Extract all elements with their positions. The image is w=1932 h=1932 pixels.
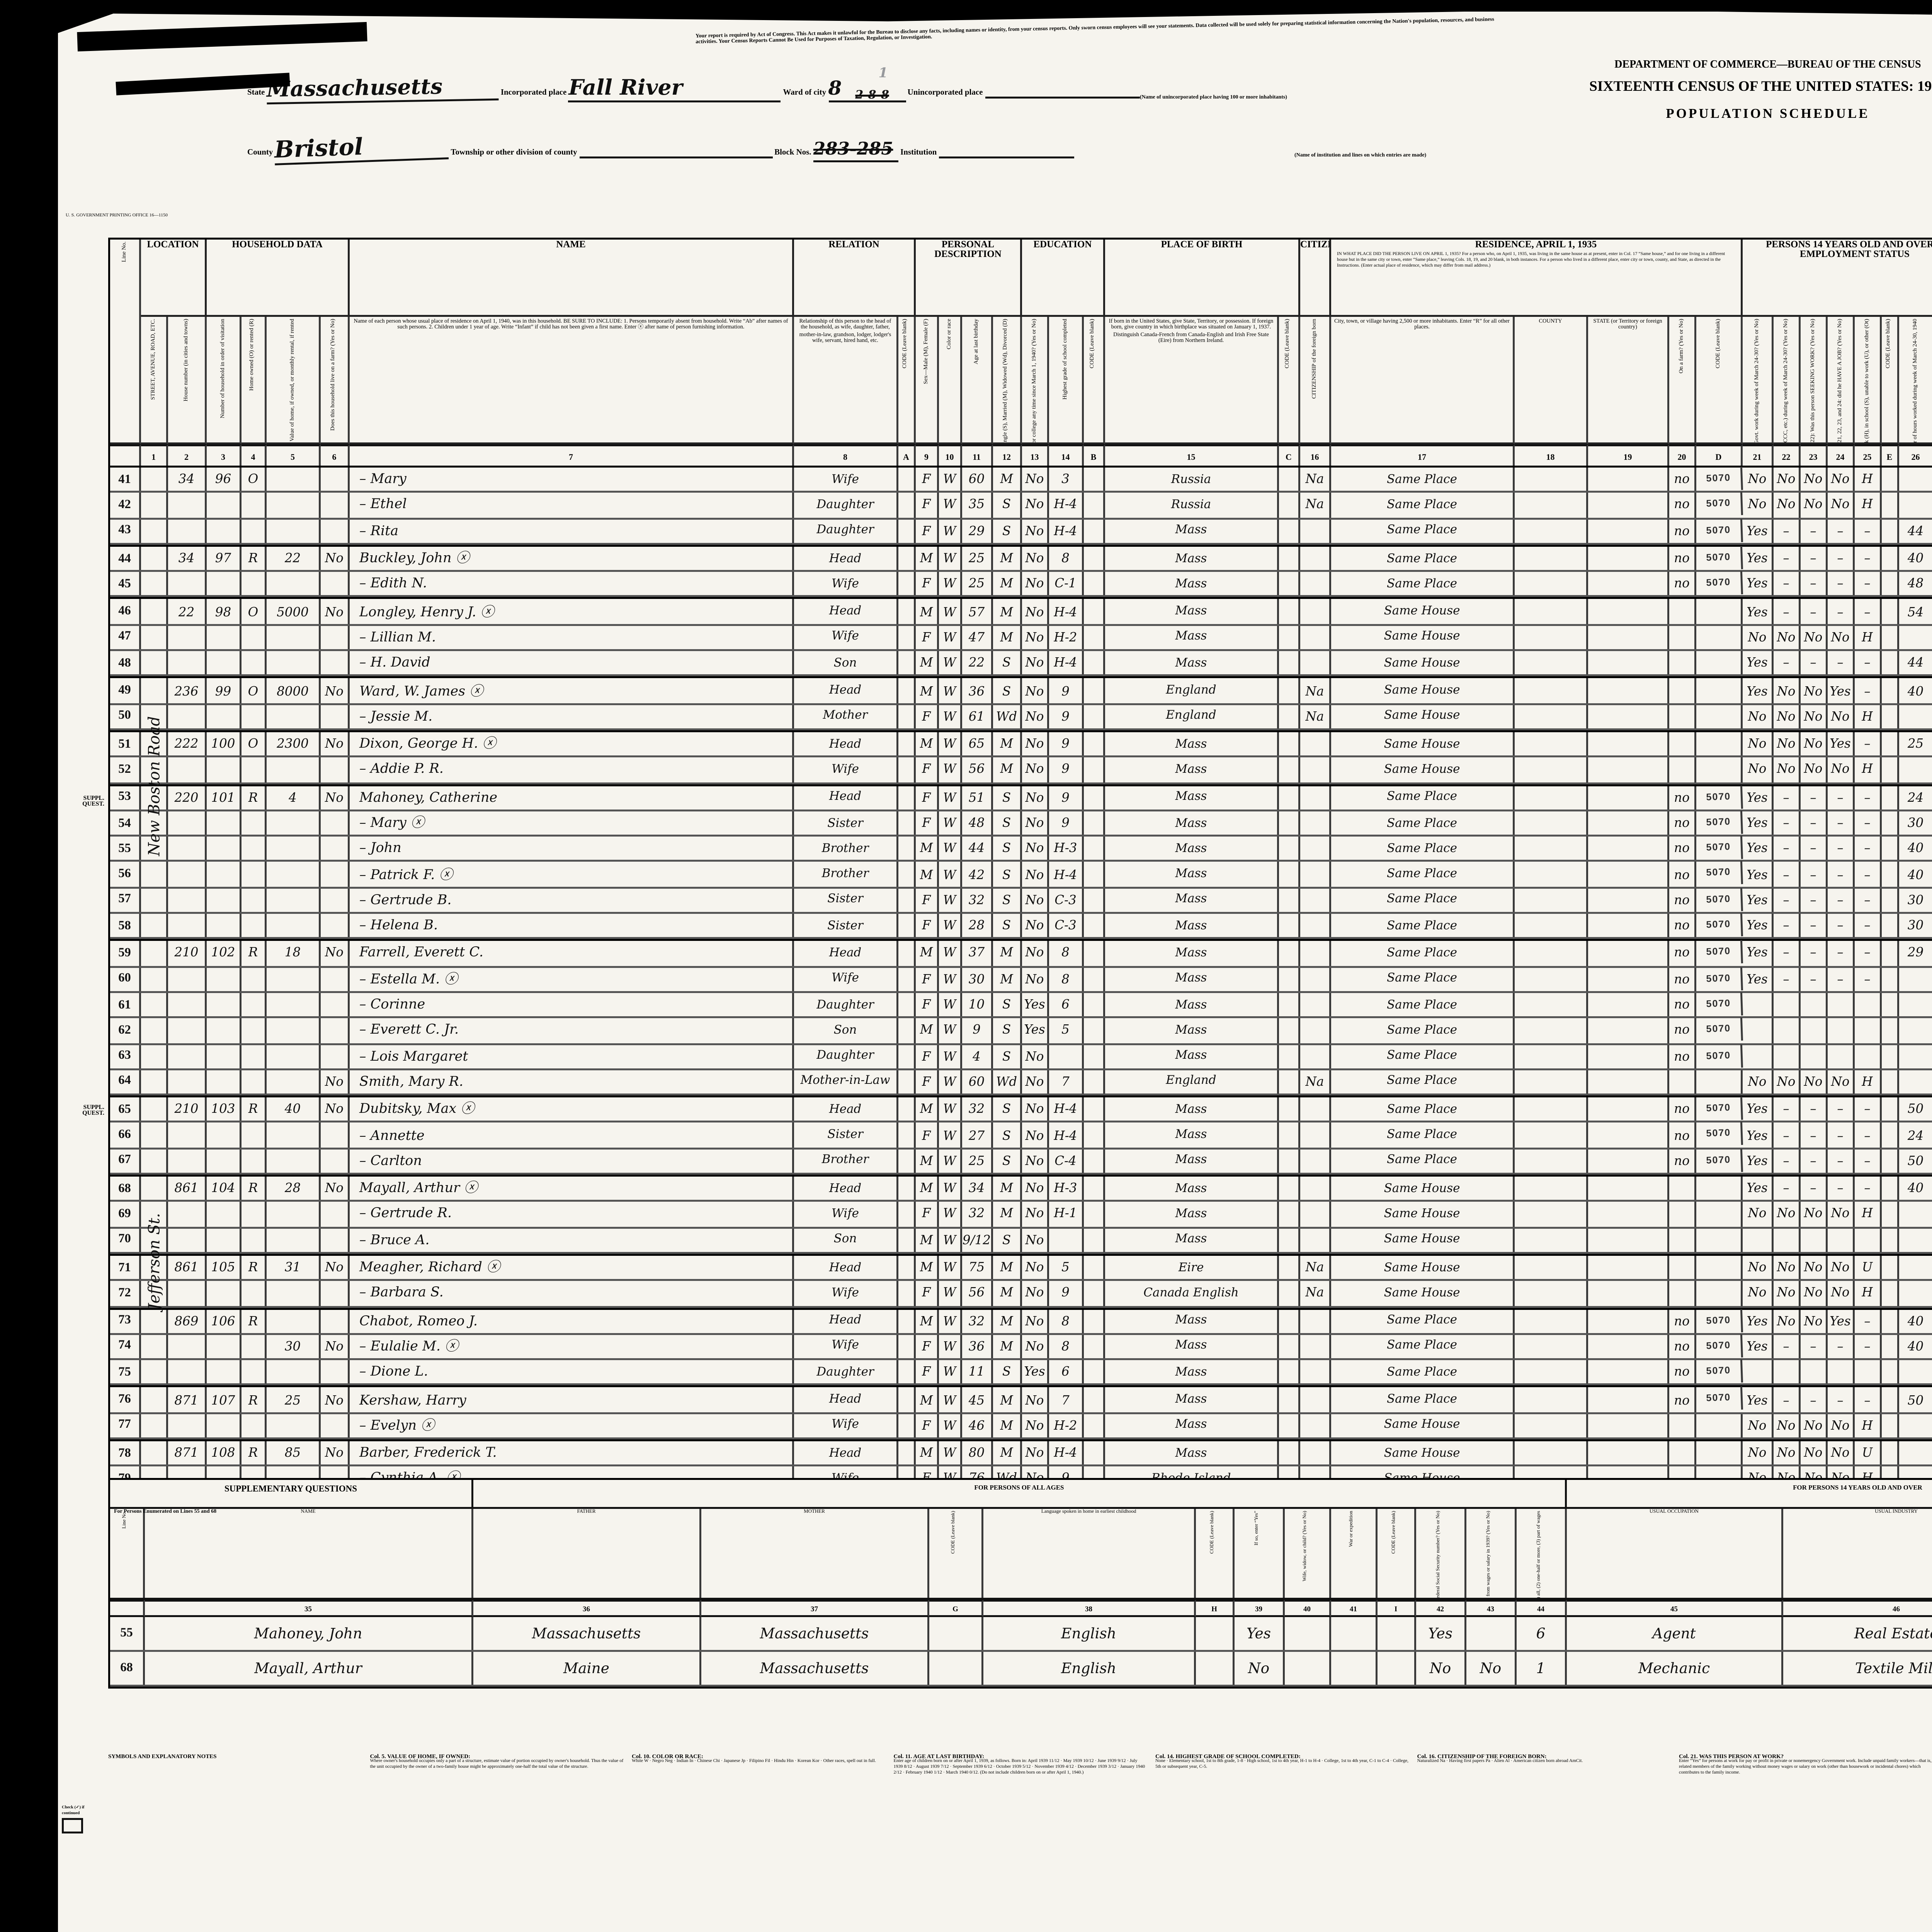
note-block: Col. 14. HIGHEST GRADE OF SCHOOL COMPLET… xyxy=(1155,1752,1410,1776)
cell-w25: H xyxy=(1855,704,1882,728)
cell-w22: No xyxy=(1774,1309,1801,1333)
cell-state xyxy=(1588,468,1669,491)
cell-w25 xyxy=(1855,1044,1882,1068)
cell-name: – Gertrude B. xyxy=(350,888,794,912)
supp-row: 55Mahoney, JohnMassachusettsMassachusett… xyxy=(110,1617,1932,1652)
census-line: SIXTEENTH CENSUS OF THE UNITED STATES: 1… xyxy=(1449,77,1932,95)
cell-age: 28 xyxy=(962,914,993,937)
cell-val xyxy=(267,993,321,1017)
cell-sex: F xyxy=(916,519,939,543)
cell-codeB xyxy=(1084,1098,1105,1121)
cell-w23: No xyxy=(1801,1441,1828,1465)
table-row: 78871108R85NoBarber, Frederick T.HeadMW8… xyxy=(110,1439,1932,1467)
cell-w24: Yes xyxy=(1828,1309,1855,1333)
cell-col: W xyxy=(939,758,962,781)
cell-w23: – xyxy=(1801,546,1828,570)
cell-sch: No xyxy=(1022,1256,1049,1279)
cell-house: 34 xyxy=(168,546,207,570)
cell-resfarm: no xyxy=(1669,1360,1696,1384)
cell-resfarm xyxy=(1669,1441,1696,1465)
supp-num-vet3: 41 xyxy=(1331,1600,1378,1617)
cell-own xyxy=(241,1413,267,1437)
column-label-hrs: Number of hours worked during week of Ma… xyxy=(1899,317,1932,444)
cell-rel: Brother xyxy=(794,862,898,886)
township-label: Township or other division of county xyxy=(451,147,577,156)
cell-name: – Evelyn ⓧ xyxy=(350,1413,794,1437)
cell-sch: No xyxy=(1022,758,1049,781)
cell-hrs xyxy=(1899,1228,1932,1252)
cell-hh: 106 xyxy=(207,1309,241,1333)
cell-lineL: 53 xyxy=(110,786,141,809)
cell-own xyxy=(241,862,267,886)
cell-col: W xyxy=(939,914,962,937)
cell-hh xyxy=(207,1335,241,1358)
cell-cit xyxy=(1300,1441,1331,1465)
cell-state xyxy=(1588,1335,1669,1358)
cell-codeC xyxy=(1279,942,1300,965)
legal-notice: Your report is required by Act of Congre… xyxy=(696,17,1507,46)
cell-col: W xyxy=(939,1309,962,1333)
cell-codeA xyxy=(898,1149,916,1173)
cell-codeE xyxy=(1882,758,1899,781)
cell-w22: – xyxy=(1774,1123,1801,1147)
cell-codeE xyxy=(1882,679,1899,702)
cell-house xyxy=(168,1335,207,1358)
supp-col-tongue: Language spoken in home in earliest chil… xyxy=(983,1509,1196,1598)
cell-codeE xyxy=(1882,1441,1899,1465)
cell-w21: No xyxy=(1743,626,1774,649)
supp-col-codeI: CODE (Leave blank) xyxy=(1378,1509,1416,1598)
cell-house xyxy=(168,1202,207,1226)
cell-codeA xyxy=(898,811,916,835)
table-row: 72– Barbara S.WifeFW56MNo9Canada English… xyxy=(110,1281,1932,1307)
cell-hrs: 40 xyxy=(1899,1335,1932,1358)
cell-w23 xyxy=(1801,1360,1828,1384)
cell-sex: M xyxy=(916,1098,939,1121)
column-group-birthplace: PLACE OF BIRTH xyxy=(1105,240,1300,317)
column-number-lineL xyxy=(110,444,141,466)
supp-num-father: 36 xyxy=(473,1600,701,1617)
cell-house xyxy=(168,758,207,781)
cell-w25 xyxy=(1855,1228,1882,1252)
cell-codeA xyxy=(898,572,916,596)
cell-rel: Head xyxy=(794,1098,898,1121)
cell-res: Same House xyxy=(1331,600,1515,623)
cell-col: W xyxy=(939,837,962,861)
cell-resfarm: no xyxy=(1669,862,1696,886)
cell-w25: – xyxy=(1855,732,1882,756)
cell-county xyxy=(1515,1098,1588,1121)
cell-bp: Mass xyxy=(1105,1388,1279,1412)
cell-grade: H-4 xyxy=(1049,600,1084,623)
cell-codeE xyxy=(1882,704,1899,728)
cell-codeE xyxy=(1882,914,1899,937)
cell-farm xyxy=(321,967,350,991)
cell-sex: M xyxy=(916,1177,939,1200)
cell-bp: Mass xyxy=(1105,811,1279,835)
cell-w21: Yes xyxy=(1743,1309,1774,1333)
cell-codeE xyxy=(1882,1019,1899,1042)
cell-own: R xyxy=(241,1256,267,1279)
cell-val xyxy=(267,1202,321,1226)
cell-cit xyxy=(1300,546,1331,570)
supp-num-vet: 39 xyxy=(1235,1600,1285,1617)
cell-street xyxy=(141,1441,168,1465)
cell-codeD: 5070 xyxy=(1696,492,1743,518)
incplace-label: Incorporated place xyxy=(501,87,566,97)
cell-resfarm xyxy=(1669,1256,1696,1279)
cell-val: 85 xyxy=(267,1441,321,1465)
supp-cell-father: Massachusetts xyxy=(473,1617,701,1650)
cell-age: 36 xyxy=(962,1335,993,1358)
cell-house xyxy=(168,1228,207,1252)
cell-codeA xyxy=(898,626,916,649)
cell-bp: Mass xyxy=(1105,1098,1279,1121)
cell-farm xyxy=(321,626,350,649)
cell-state xyxy=(1588,1149,1669,1173)
cell-own xyxy=(241,1360,267,1384)
column-number-w24: 24 xyxy=(1828,444,1855,466)
cell-col: W xyxy=(939,1256,962,1279)
cell-farm: No xyxy=(321,1177,350,1200)
cell-w23: – xyxy=(1801,1098,1828,1121)
cell-hrs xyxy=(1899,704,1932,728)
column-label-cit: CITIZENSHIP of the foreign born xyxy=(1300,317,1331,444)
cell-house xyxy=(168,1070,207,1094)
table-row: 48– H. DavidSonMW22SNoH-4MassSame HouseY… xyxy=(110,651,1932,677)
cell-w24: – xyxy=(1828,888,1855,912)
cell-w23: No xyxy=(1801,1070,1828,1094)
cell-hh xyxy=(207,651,241,675)
cell-codeA xyxy=(898,786,916,809)
cell-col: W xyxy=(939,786,962,809)
cell-val: 28 xyxy=(267,1177,321,1200)
cell-w23: No xyxy=(1801,1256,1828,1279)
cell-w22 xyxy=(1774,993,1801,1017)
cell-sch: Yes xyxy=(1022,1360,1049,1384)
cell-name: – Corinne xyxy=(350,993,794,1017)
cell-hh xyxy=(207,758,241,781)
cell-sex: F xyxy=(916,758,939,781)
cell-col: W xyxy=(939,1123,962,1147)
cell-codeD xyxy=(1696,1256,1743,1279)
cell-w21: Yes xyxy=(1743,519,1774,543)
cell-w22 xyxy=(1774,1019,1801,1042)
cell-sex: F xyxy=(916,1281,939,1305)
cell-sex: M xyxy=(916,1149,939,1173)
cell-county xyxy=(1515,519,1588,543)
cell-w22: – xyxy=(1774,546,1801,570)
cell-codeA xyxy=(898,1228,916,1252)
cell-age: 9 xyxy=(962,1019,993,1042)
cell-w21: Yes xyxy=(1743,786,1774,809)
cell-age: 10 xyxy=(962,993,993,1017)
supp-cell-codeI xyxy=(1378,1652,1416,1685)
cell-rel: Son xyxy=(794,1019,898,1042)
supp-cell-vet2 xyxy=(1285,1652,1331,1685)
column-label-bp: If born in the United States, give State… xyxy=(1105,317,1279,444)
cell-house xyxy=(168,1149,207,1173)
cell-cit: Na xyxy=(1300,1281,1331,1305)
cell-mar: S xyxy=(993,1044,1022,1068)
cell-codeD: 5070 xyxy=(1696,888,1743,913)
cell-codeB xyxy=(1084,572,1105,596)
cell-w22: No xyxy=(1774,1441,1801,1465)
cell-hrs xyxy=(1899,1360,1932,1384)
cell-resfarm: no xyxy=(1669,942,1696,965)
cell-hh xyxy=(207,1413,241,1437)
cell-bp: Mass xyxy=(1105,1441,1279,1465)
cell-county xyxy=(1515,1202,1588,1226)
cell-col: W xyxy=(939,1098,962,1121)
table-row: 53220101R4NoMahoney, CatherineHeadFW51SN… xyxy=(110,784,1932,811)
cell-house: 210 xyxy=(168,1098,207,1121)
cell-lineL: 58 xyxy=(110,914,141,937)
cell-sex: M xyxy=(916,1256,939,1279)
cell-w25: H xyxy=(1855,1070,1882,1094)
uninc-label: Unincorporated place xyxy=(908,87,983,97)
supp-cell-vet3 xyxy=(1331,1652,1378,1685)
cell-val xyxy=(267,758,321,781)
cell-own xyxy=(241,758,267,781)
state-value: Massachusetts xyxy=(267,73,499,104)
cell-w25: – xyxy=(1855,572,1882,596)
cell-house: 22 xyxy=(168,600,207,623)
cell-codeA xyxy=(898,1177,916,1200)
cell-col: W xyxy=(939,1228,962,1252)
cell-age: 57 xyxy=(962,600,993,623)
cell-grade: 3 xyxy=(1049,468,1084,491)
cell-val xyxy=(267,888,321,912)
supp-cell-tongue: English xyxy=(983,1617,1196,1650)
supp-col-vet3: War or expedition xyxy=(1331,1509,1378,1598)
cell-codeA xyxy=(898,1070,916,1094)
cell-col: W xyxy=(939,732,962,756)
cell-hrs: 30 xyxy=(1899,811,1932,835)
cell-hrs xyxy=(1899,626,1932,649)
column-label-w25: Indicate whether engaged in home housewo… xyxy=(1855,317,1882,444)
page-header: Your report is required by Act of Congre… xyxy=(58,10,1932,238)
cell-cit xyxy=(1300,1388,1331,1412)
cell-rel: Son xyxy=(794,1228,898,1252)
cell-codeB xyxy=(1084,786,1105,809)
cell-farm xyxy=(321,1228,350,1252)
cell-age: 25 xyxy=(962,572,993,596)
cell-grade: 8 xyxy=(1049,1309,1084,1333)
cell-w21: Yes xyxy=(1743,914,1774,937)
cell-sch: No xyxy=(1022,1309,1049,1333)
supp-col-ss1: Does this person have a Federal Social S… xyxy=(1416,1509,1466,1598)
cell-col: W xyxy=(939,1281,962,1305)
cell-grade: H-3 xyxy=(1049,1177,1084,1200)
cell-codeB xyxy=(1084,468,1105,491)
cell-name: – Everett C. Jr. xyxy=(350,1019,794,1042)
cell-grade: H-3 xyxy=(1049,837,1084,861)
cell-sch: No xyxy=(1022,888,1049,912)
cell-codeA xyxy=(898,1044,916,1068)
supp-num-ss2: 43 xyxy=(1466,1600,1517,1617)
supp-cell-occ: Agent xyxy=(1567,1617,1783,1650)
cell-mar: M xyxy=(993,572,1022,596)
cell-sex: F xyxy=(916,914,939,937)
cell-grade: 6 xyxy=(1049,1360,1084,1384)
cell-val xyxy=(267,811,321,835)
cell-res: Same House xyxy=(1331,758,1515,781)
cell-w22: No xyxy=(1774,468,1801,491)
cell-mar: M xyxy=(993,967,1022,991)
cell-own xyxy=(241,914,267,937)
cell-grade: 7 xyxy=(1049,1388,1084,1412)
cell-codeD xyxy=(1696,679,1743,702)
cell-mar: M xyxy=(993,600,1022,623)
column-number-farm: 6 xyxy=(321,444,350,466)
cell-val: 5000 xyxy=(267,600,321,623)
column-number-bp: 15 xyxy=(1105,444,1279,466)
cell-sex: F xyxy=(916,572,939,596)
supp-cell-ss3: 6 xyxy=(1517,1617,1567,1650)
cell-codeB xyxy=(1084,1256,1105,1279)
cell-col: W xyxy=(939,993,962,1017)
cell-farm xyxy=(321,493,350,517)
table-row: 413496O– MaryWifeFW60MNo3RussiaNaSame Pl… xyxy=(110,468,1932,493)
cell-sch: No xyxy=(1022,1098,1049,1121)
cell-age: 4 xyxy=(962,1044,993,1068)
table-row: 56– Patrick F. ⓧBrotherMW42SNoH-4MassSam… xyxy=(110,862,1932,888)
supp-cell-ss1: Yes xyxy=(1416,1617,1466,1650)
cell-sex: M xyxy=(916,1228,939,1252)
column-label-rel: Relationship of this person to the head … xyxy=(794,317,898,444)
cell-age: 48 xyxy=(962,811,993,835)
incplace-value: Fall River xyxy=(568,75,781,102)
cell-lineL: 56 xyxy=(110,862,141,886)
cell-county xyxy=(1515,1388,1588,1412)
column-label-res: City, town, or village having 2,500 or m… xyxy=(1331,317,1515,444)
inst-note: (Name of institution and lines on which … xyxy=(1294,153,1507,159)
cell-res: Same Place xyxy=(1331,1335,1515,1358)
supp-cell-mother: Massachusetts xyxy=(701,1617,929,1650)
cell-cit xyxy=(1300,651,1331,675)
cell-codeC xyxy=(1279,811,1300,835)
cell-sch: No xyxy=(1022,1070,1049,1094)
cell-res: Same Place xyxy=(1331,493,1515,517)
cell-w25: – xyxy=(1855,1335,1882,1358)
cell-sex: F xyxy=(916,1123,939,1147)
cell-lineL: 55 xyxy=(110,837,141,861)
cell-house xyxy=(168,493,207,517)
cell-w24: No xyxy=(1828,468,1855,491)
supp-cell-vet: No xyxy=(1235,1652,1285,1685)
cell-mar: M xyxy=(993,942,1022,965)
cell-own xyxy=(241,837,267,861)
cell-farm xyxy=(321,1202,350,1226)
column-number-own: 4 xyxy=(241,444,267,466)
cell-hrs: 50 xyxy=(1899,1149,1932,1173)
cell-mar: S xyxy=(993,914,1022,937)
cell-lineL: 76 xyxy=(110,1388,141,1412)
cell-w24: No xyxy=(1828,758,1855,781)
cell-w21: No xyxy=(1743,1256,1774,1279)
cell-mar: S xyxy=(993,1360,1022,1384)
column-label-resfarm: On a farm? (Yes or No) xyxy=(1669,317,1696,444)
cell-sex: M xyxy=(916,546,939,570)
cell-col: W xyxy=(939,1413,962,1437)
cell-state xyxy=(1588,811,1669,835)
cell-codeD: 5070 xyxy=(1696,518,1743,544)
cell-codeC xyxy=(1279,704,1300,728)
table-row: 70– Bruce A.SonMW9/12SNoMassSame House70 xyxy=(110,1228,1932,1253)
cell-val: 2300 xyxy=(267,732,321,756)
cell-w24: – xyxy=(1828,862,1855,886)
cell-bp: Mass xyxy=(1105,1123,1279,1147)
cell-res: Same Place xyxy=(1331,914,1515,937)
cell-sex: F xyxy=(916,493,939,517)
cell-val: 40 xyxy=(267,1098,321,1121)
cell-cit xyxy=(1300,1098,1331,1121)
cell-cit: Na xyxy=(1300,1070,1331,1094)
checkbox-icon xyxy=(62,1818,83,1833)
cell-w23: – xyxy=(1801,600,1828,623)
cell-mar: M xyxy=(993,1177,1022,1200)
cell-age: 46 xyxy=(962,1413,993,1437)
cell-state xyxy=(1588,967,1669,991)
cell-codeD xyxy=(1696,732,1743,756)
cell-hrs xyxy=(1899,1019,1932,1042)
cell-val xyxy=(267,1044,321,1068)
cell-codeD: 5070 xyxy=(1696,1308,1743,1333)
cell-w22: No xyxy=(1774,758,1801,781)
cell-sex: F xyxy=(916,1413,939,1437)
cell-mar: M xyxy=(993,1256,1022,1279)
cell-resfarm: no xyxy=(1669,1044,1696,1068)
cell-col: W xyxy=(939,811,962,835)
cell-codeC xyxy=(1279,1202,1300,1226)
cell-grade: 9 xyxy=(1049,811,1084,835)
cell-farm xyxy=(321,572,350,596)
cell-county xyxy=(1515,758,1588,781)
cell-mar: M xyxy=(993,1309,1022,1333)
cell-w22: No xyxy=(1774,1202,1801,1226)
cell-mar: S xyxy=(993,679,1022,702)
cell-farm xyxy=(321,888,350,912)
cell-val: 8000 xyxy=(267,679,321,702)
cell-sch: No xyxy=(1022,651,1049,675)
supp-row: 68Mayall, ArthurMaineMassachusettsEnglis… xyxy=(110,1652,1932,1687)
cell-codeE xyxy=(1882,862,1899,886)
column-label-sex: Sex—Male (M), Female (F) xyxy=(916,317,939,444)
cell-hh xyxy=(207,1149,241,1173)
cell-resfarm: no xyxy=(1669,519,1696,543)
cell-codeD: 5070 xyxy=(1696,1148,1743,1174)
cell-house: 222 xyxy=(168,732,207,756)
ward-value: 8 xyxy=(828,79,842,100)
cell-bp: Russia xyxy=(1105,493,1279,517)
cell-w24: – xyxy=(1828,811,1855,835)
cell-state xyxy=(1588,1441,1669,1465)
cell-codeC xyxy=(1279,888,1300,912)
suppl-quest-marker: SUPPL. QUEST. xyxy=(62,796,104,809)
cell-resfarm xyxy=(1669,1177,1696,1200)
cell-rel: Daughter xyxy=(794,493,898,517)
cell-rel: Wife xyxy=(794,1202,898,1226)
cell-w22 xyxy=(1774,1360,1801,1384)
cell-codeA xyxy=(898,651,916,675)
cell-codeB xyxy=(1084,967,1105,991)
cell-cit xyxy=(1300,1335,1331,1358)
cell-codeA xyxy=(898,1388,916,1412)
cell-sch: No xyxy=(1022,1044,1049,1068)
cell-grade: H-4 xyxy=(1049,1098,1084,1121)
cell-codeB xyxy=(1084,1123,1105,1147)
